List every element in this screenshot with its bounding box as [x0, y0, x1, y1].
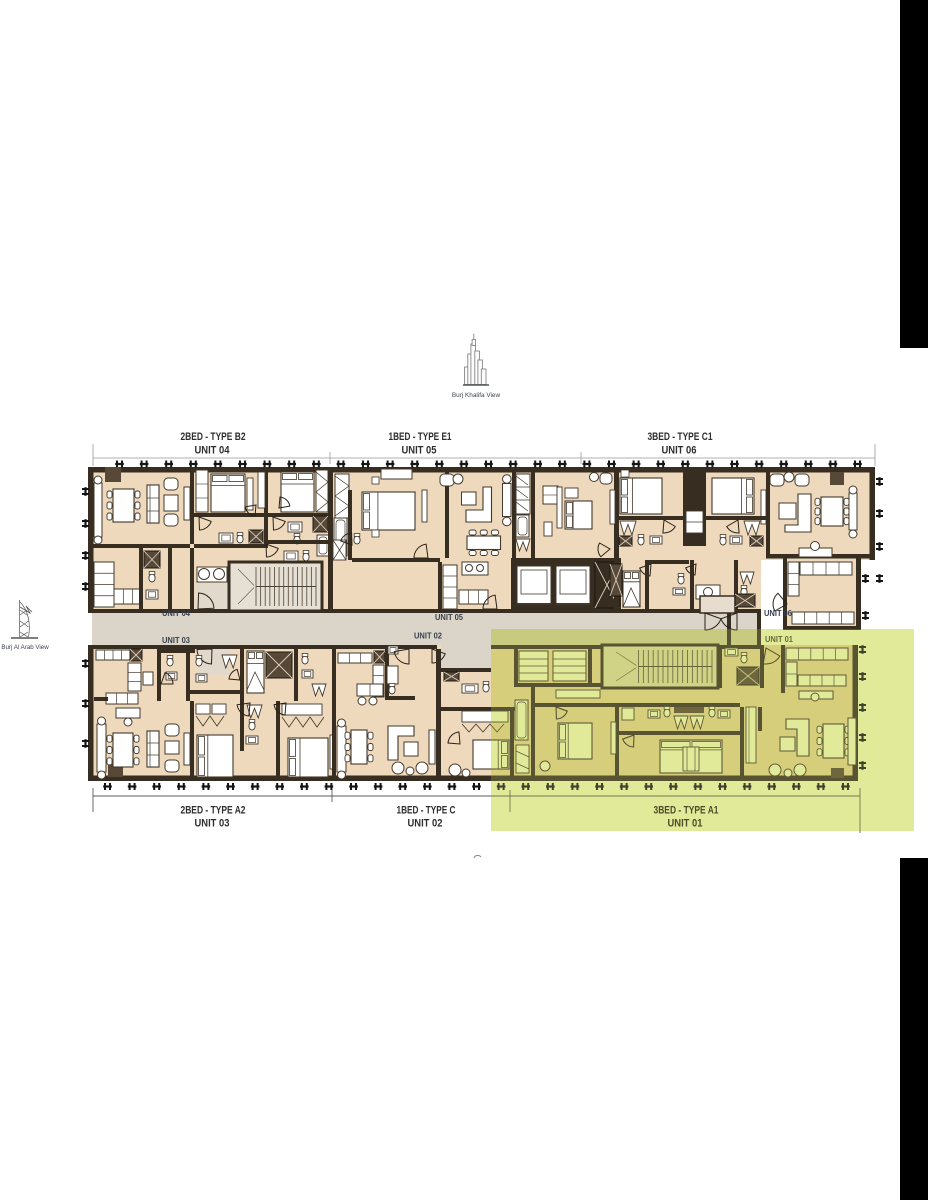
svg-text:UNIT 02: UNIT 02 — [414, 632, 443, 641]
svg-text:UNIT 03: UNIT 03 — [162, 636, 191, 645]
svg-text:3BED - TYPE C1: 3BED - TYPE C1 — [648, 431, 713, 443]
svg-text:UNIT 02: UNIT 02 — [408, 818, 443, 830]
svg-text:2BED - TYPE A2: 2BED - TYPE A2 — [181, 805, 246, 817]
svg-text:1BED - TYPE E1: 1BED - TYPE E1 — [389, 431, 452, 443]
svg-text:UNIT 03: UNIT 03 — [195, 818, 230, 830]
svg-text:2BED - TYPE B2: 2BED - TYPE B2 — [181, 431, 246, 443]
svg-text:UNIT 01: UNIT 01 — [668, 818, 703, 830]
svg-text:UNIT 04: UNIT 04 — [195, 445, 230, 457]
svg-text:UNIT 05: UNIT 05 — [435, 613, 464, 622]
svg-text:UNIT 05: UNIT 05 — [402, 445, 437, 457]
svg-text:UNIT 04: UNIT 04 — [162, 609, 191, 618]
svg-text:UNIT 06: UNIT 06 — [662, 445, 697, 457]
svg-text:3BED - TYPE A1: 3BED - TYPE A1 — [654, 805, 719, 817]
svg-text:Burj Khalifa View: Burj Khalifa View — [452, 392, 501, 399]
svg-text:1BED - TYPE C: 1BED - TYPE C — [397, 805, 456, 817]
svg-text:Burj Al Arab View: Burj Al Arab View — [1, 644, 49, 651]
svg-text:UNIT 06: UNIT 06 — [764, 609, 793, 618]
